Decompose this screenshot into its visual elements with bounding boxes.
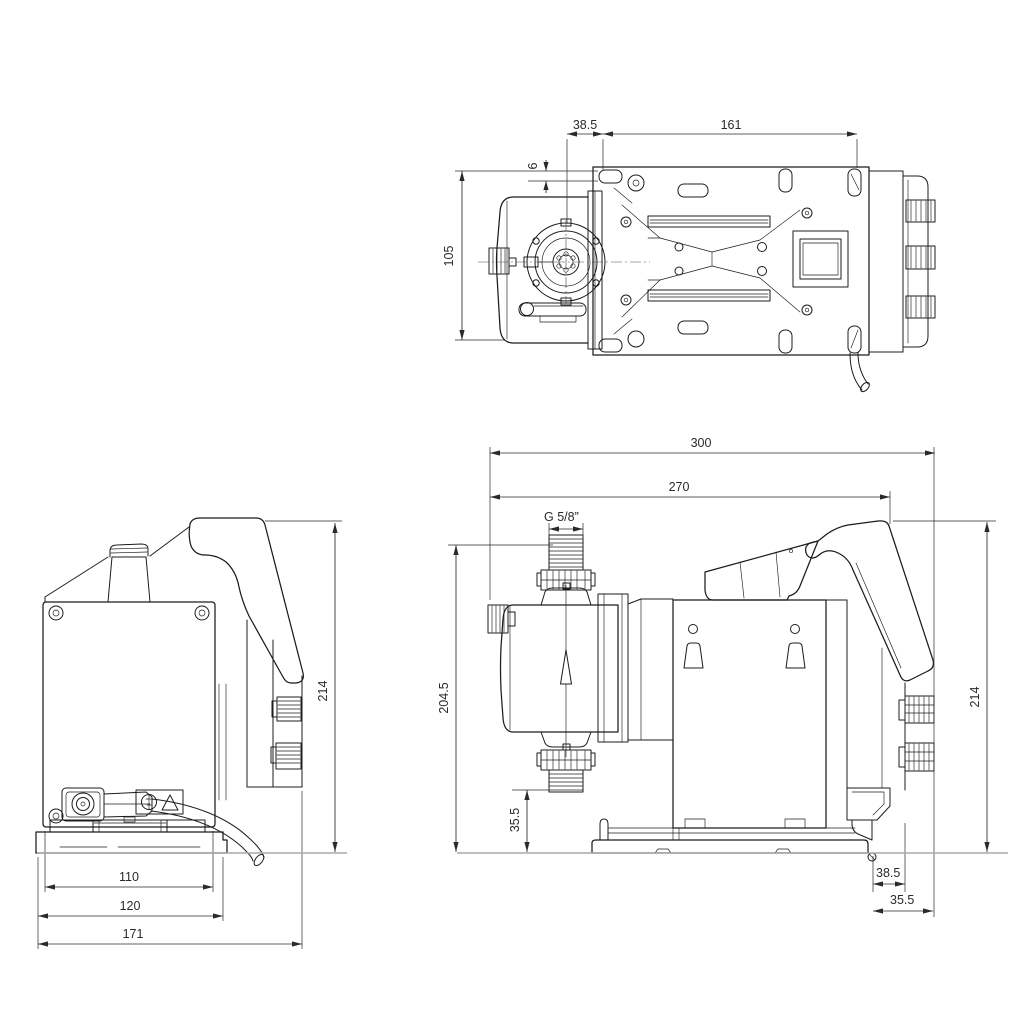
front-control-console	[189, 518, 303, 800]
front-top-cover	[45, 527, 189, 602]
dim-front-overall-height: 214	[316, 681, 330, 702]
front-view: 214 110 120 171	[36, 518, 342, 949]
dim-front-panel-width: 110	[119, 870, 139, 884]
dim-top-head-offset: 38.5	[573, 118, 597, 132]
dim-side-knob-depth: 35.5	[890, 893, 914, 907]
dim-side-knob-offset: 38.5	[876, 866, 900, 880]
top-knob-2	[906, 246, 935, 269]
drawing-page: 38.5 161 6 105	[0, 0, 1024, 1024]
front-base	[36, 817, 227, 853]
front-warning-label	[136, 790, 183, 814]
panel-screw-top-right	[195, 606, 209, 620]
dim-side-thread-size: G 5/8”	[544, 510, 579, 524]
top-knob-3	[906, 296, 935, 318]
keyhole-mount-2	[791, 625, 800, 634]
flow-direction-arrow	[561, 585, 572, 757]
dim-front-overall-width: 171	[123, 927, 144, 941]
side-vent-knob	[488, 605, 515, 633]
top-threaded-connector	[549, 535, 583, 570]
side-view-dimensions: 300 270 G 5/8” 204.5 35.5	[437, 436, 996, 917]
top-mounting-plate	[593, 167, 869, 355]
side-dosing-head	[488, 535, 628, 792]
top-cable	[850, 353, 871, 393]
bottom-threaded-connector	[549, 770, 583, 792]
side-main-body	[673, 600, 905, 861]
dim-side-overall-height: 214	[968, 687, 982, 708]
top-control-unit	[850, 171, 935, 393]
dim-top-mounting-span: 161	[721, 118, 742, 132]
panel-screw-top-left	[49, 606, 63, 620]
technical-drawing: 38.5 161 6 105	[0, 0, 1024, 1024]
side-adapter	[628, 599, 673, 740]
side-control-console	[705, 521, 933, 681]
panel-screw-bottom-left	[49, 809, 63, 823]
dim-side-overall-depth: 300	[691, 436, 712, 450]
top-view: 38.5 161 6 105	[442, 118, 935, 393]
top-vent-knob	[489, 248, 516, 274]
keyhole-mount-1	[689, 625, 698, 634]
dim-top-body-width: 105	[442, 246, 456, 267]
top-knob-1	[906, 200, 935, 222]
front-knob-1	[272, 697, 301, 721]
front-cable	[151, 799, 266, 867]
side-view: 300 270 G 5/8” 204.5 35.5	[437, 436, 996, 917]
dim-side-hydraulic-top-height: 204.5	[437, 682, 451, 713]
dim-top-slot-height: 6	[526, 162, 540, 169]
side-knob-2	[899, 743, 934, 771]
dim-side-body-depth: 270	[669, 480, 690, 494]
dim-side-outlet-height: 35.5	[508, 808, 522, 832]
front-cable-gland	[62, 788, 152, 821]
dim-front-base-width: 120	[120, 899, 141, 913]
front-view-dimensions: 214 110 120 171	[38, 521, 342, 949]
front-knob-2	[271, 743, 301, 769]
side-knob-1	[899, 696, 934, 723]
